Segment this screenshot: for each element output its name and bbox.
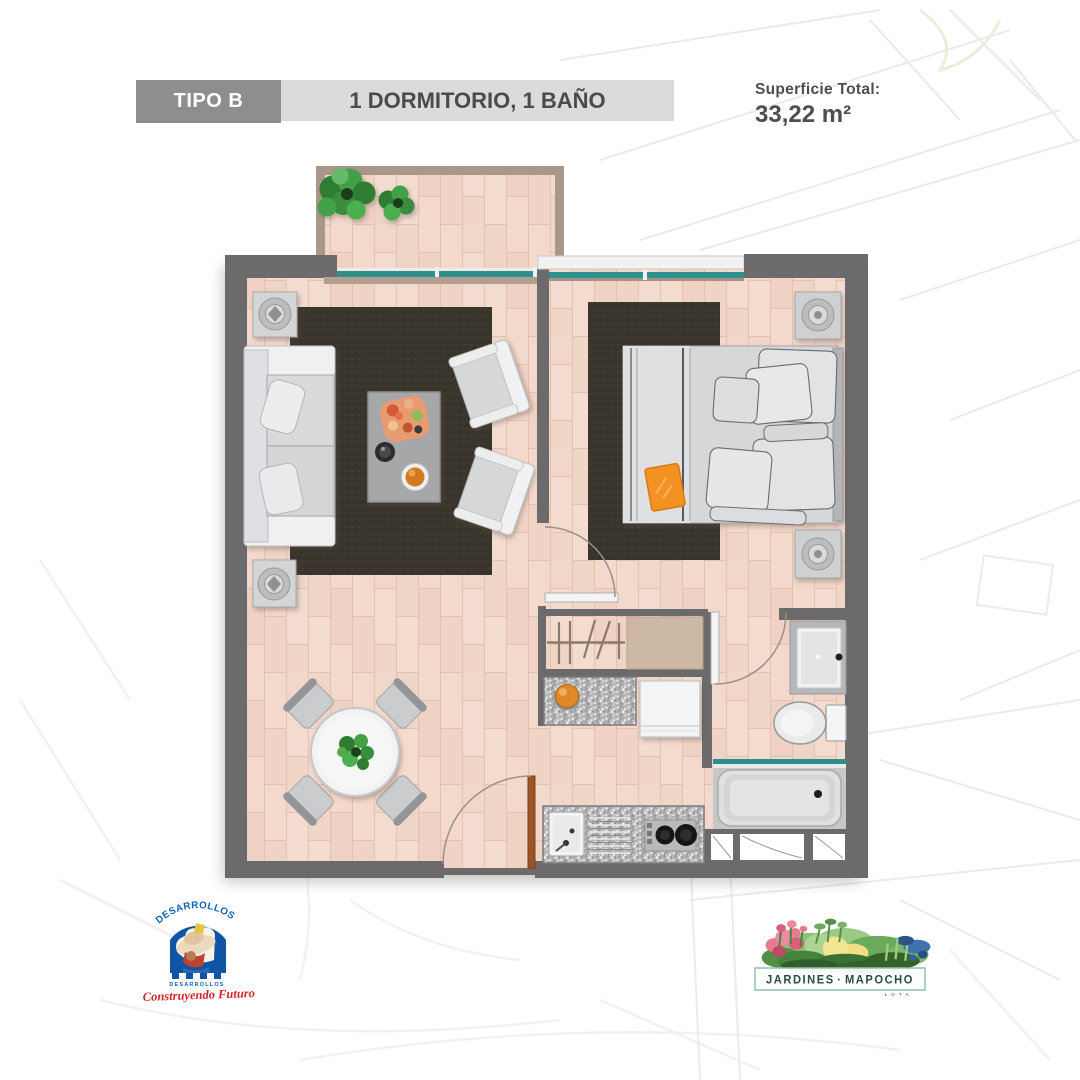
svg-text:L O T A: L O T A xyxy=(885,992,910,997)
svg-text:JARDINES · MAPOCHO: JARDINES · MAPOCHO xyxy=(766,975,914,987)
svg-text:DESARROLLOS: DESARROLLOS xyxy=(154,900,237,926)
svg-text:Construyendo Futuro: Construyendo Futuro xyxy=(143,986,256,1004)
